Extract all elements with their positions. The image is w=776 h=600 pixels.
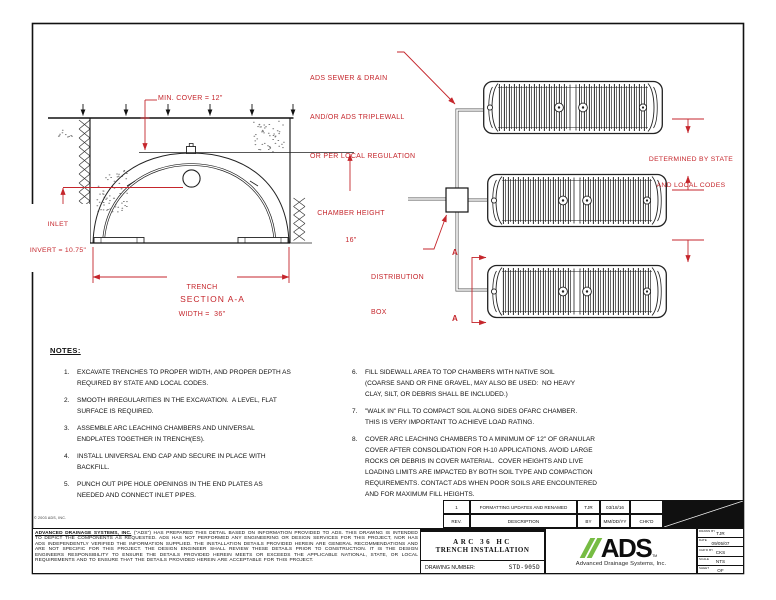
rev-header: DESCRIPTION	[470, 514, 577, 528]
rev-header: CHK'D	[630, 514, 663, 528]
notes-column-right: 6.FILL SIDEWALL AREA TO TOP CHAMBERS WIT…	[352, 367, 612, 506]
note-number: 4.	[64, 451, 77, 473]
spacing-note: DETERMINED BY STATE AND LOCAL CODES	[644, 139, 738, 207]
chamber-row-3	[488, 266, 667, 318]
pipe-note-line2: AND/OR ADS TRIPLEWALL	[310, 111, 415, 124]
inlet-invert-label: INLET INVERT = 10.75"	[26, 204, 90, 272]
distribution-box-label: DISTRIBUTION BOX	[371, 249, 424, 341]
pipe-note-line1: ADS SEWER & DRAIN	[310, 72, 415, 85]
notes-column-left: 1.EXCAVATE TRENCHES TO PROPER WIDTH, AND…	[64, 367, 324, 507]
note-text: COVER ARC LEACHING CHAMBERS TO A MINIMUM…	[365, 434, 597, 500]
disclaimer-text: ("ADS") HAS PREPARED THIS DETAIL BASED O…	[35, 531, 418, 564]
section-cut-a-bottom: A	[452, 314, 458, 323]
dist-box-line1: DISTRIBUTION	[371, 272, 424, 284]
drawing-title: ARC 36 HC TRENCH INSTALLATION	[421, 532, 544, 560]
note-number: 7.	[352, 406, 365, 428]
copyright-note: © 2003 ADS, INC.	[34, 516, 66, 520]
chamber-row-2	[488, 175, 667, 227]
inlet-line1: INLET	[27, 221, 89, 230]
inlet-pipe-circle	[183, 170, 200, 187]
note-text: INSTALL UNIVERSAL END CAP AND SECURE IN …	[77, 451, 266, 473]
note-text: EXCAVATE TRENCHES TO PROPER WIDTH, AND P…	[77, 367, 291, 389]
rev-cell: TJR	[577, 500, 600, 514]
title-block-center: ARC 36 HC TRENCH INSTALLATION DRAWING NU…	[420, 528, 545, 574]
note-text: ASSEMBLE ARC LEACHING CHAMBERS AND UNIVE…	[77, 423, 255, 445]
note-text: PUNCH OUT PIPE HOLE OPENINGS IN THE END …	[77, 479, 263, 501]
field-row: DRAWN BYTJR	[698, 529, 743, 538]
section-cut-a-top: A	[452, 248, 458, 257]
note-text: "WALK IN" FILL TO COMPACT SOIL ALONG SID…	[365, 406, 577, 428]
field-label: DATE	[699, 538, 707, 542]
field-row: DATE09/05/07	[698, 538, 743, 547]
rev-header: REV.	[443, 514, 470, 528]
min-cover-label: MIN. COVER = 12"	[158, 94, 223, 103]
note-item: 6.FILL SIDEWALL AREA TO TOP CHAMBERS WIT…	[352, 367, 612, 400]
compaction-arrows	[83, 104, 293, 116]
title-block-fields: DRAWN BYTJR DATE09/05/07 CHK'D BYCKS SCA…	[697, 528, 744, 574]
field-label: CHK'D BY	[699, 548, 713, 552]
note-item: 7."WALK IN" FILL TO COMPACT SOIL ALONG S…	[352, 406, 612, 428]
drawing-number-row: DRAWING NUMBER: STD-905D	[421, 560, 544, 574]
note-number: 5.	[64, 479, 77, 501]
trench-line2: WIDTH = 36"	[168, 310, 236, 319]
trench-line1: TRENCH	[168, 283, 236, 292]
chamber-row-1	[484, 82, 663, 134]
ads-tagline: Advanced Drainage Systems, Inc.	[576, 561, 666, 567]
section-caption: SECTION A-A	[165, 295, 260, 304]
distribution-box	[446, 188, 468, 212]
field-row: SHEETOF	[698, 566, 743, 575]
dist-box-line2: BOX	[371, 307, 424, 319]
disclaimer-lead: ADVANCED DRAINAGE SYSTEMS, INC.	[35, 531, 131, 536]
note-item: 3.ASSEMBLE ARC LEACHING CHAMBERS AND UNI…	[64, 423, 324, 445]
drawing-number-label: DRAWING NUMBER:	[425, 565, 475, 571]
drawing-number-value: STD-905D	[509, 564, 540, 571]
note-number: 6.	[352, 367, 365, 400]
note-number: 8.	[352, 434, 365, 500]
note-item: 8.COVER ARC LEACHING CHAMBERS TO A MINIM…	[352, 434, 612, 500]
note-number: 1.	[64, 367, 77, 389]
field-row: SCALENTS	[698, 557, 743, 566]
note-text: SMOOTH IRREGULARITIES IN THE EXCAVATION.…	[77, 395, 277, 417]
rev-cell	[630, 500, 663, 514]
note-number: 2.	[64, 395, 77, 417]
rev-cell: 03/18/16	[600, 500, 630, 514]
chamber-height-line1: CHAMBER HEIGHT	[313, 209, 389, 218]
rev-header: MM/DD/YY	[600, 514, 630, 528]
ads-logo: ADS TM	[585, 535, 657, 561]
ads-logo-text: ADS	[601, 536, 651, 560]
field-label: SHEET	[699, 566, 709, 570]
notes-title: NOTES:	[50, 346, 81, 355]
spacing-line2: AND LOCAL CODES	[644, 182, 738, 191]
spacing-line1: DETERMINED BY STATE	[644, 156, 738, 165]
field-label: SCALE	[699, 557, 709, 561]
drawing-title-line1: ARC 36 HC	[453, 538, 512, 547]
rev-cell: FORMATTING UPDATES AND RENAMED	[470, 500, 577, 514]
field-label: DRAWN BY	[699, 529, 715, 533]
note-item: 5.PUNCH OUT PIPE HOLE OPENINGS IN THE EN…	[64, 479, 324, 501]
drawing-title-line2: TRENCH INSTALLATION	[436, 546, 530, 555]
note-item: 1.EXCAVATE TRENCHES TO PROPER WIDTH, AND…	[64, 367, 324, 389]
trademark-symbol: TM	[652, 554, 657, 558]
rev-header: BY	[577, 514, 600, 528]
note-item: 2.SMOOTH IRREGULARITIES IN THE EXCAVATIO…	[64, 395, 324, 417]
rev-unused-strike	[663, 500, 744, 528]
inlet-line2: INVERT = 10.75"	[27, 247, 89, 256]
soil-hatch-right	[294, 198, 306, 241]
drawing-sheet: MIN. COVER = 12" CHAMBER HEIGHT 16" INLE…	[0, 0, 776, 600]
section-dimensions	[63, 100, 350, 283]
note-text: FILL SIDEWALL AREA TO TOP CHAMBERS WITH …	[365, 367, 575, 400]
pipe-type-note: ADS SEWER & DRAIN AND/OR ADS TRIPLEWALL …	[310, 46, 415, 189]
field-row: CHK'D BYCKS	[698, 547, 743, 556]
disclaimer-block: ADVANCED DRAINAGE SYSTEMS, INC. ("ADS") …	[32, 528, 421, 574]
ads-logo-cell: ADS TM Advanced Drainage Systems, Inc.	[545, 528, 697, 574]
chamber-height-line2: 16"	[313, 236, 389, 245]
note-number: 3.	[64, 423, 77, 445]
pipe-note-line3: OR PER LOCAL REGULATION	[310, 150, 415, 163]
note-item: 4.INSTALL UNIVERSAL END CAP AND SECURE I…	[64, 451, 324, 473]
rev-cell: 1	[443, 500, 470, 514]
